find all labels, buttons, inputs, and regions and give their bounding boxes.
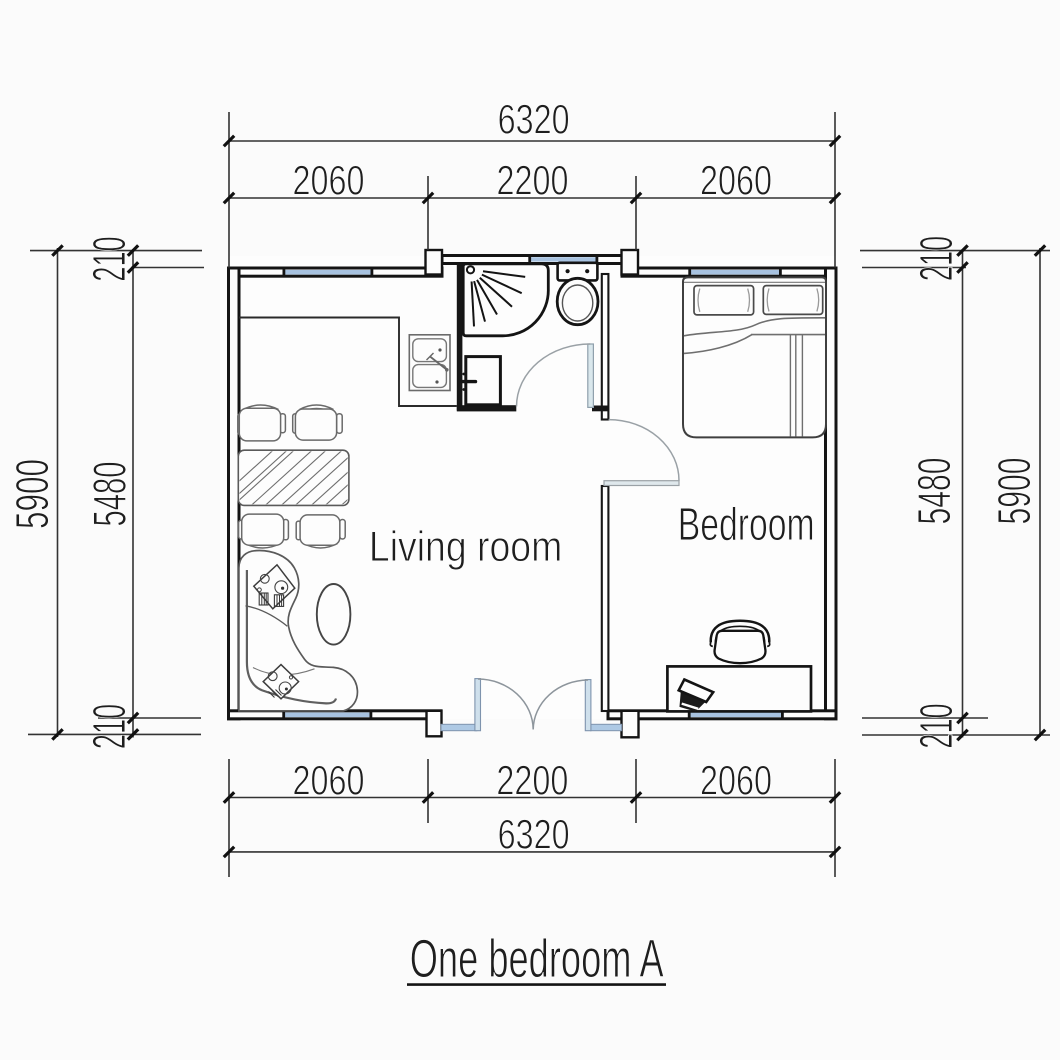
svg-text:One bedroom A: One bedroom A [410,929,664,989]
svg-text:6320: 6320 [498,810,570,857]
svg-text:Living room: Living room [369,523,562,571]
svg-text:2200: 2200 [497,156,569,203]
svg-text:2060: 2060 [700,156,772,203]
svg-text:2060: 2060 [700,756,772,803]
svg-text:5480: 5480 [85,462,136,527]
svg-text:210: 210 [85,236,136,281]
svg-text:210: 210 [85,704,136,749]
svg-text:5900: 5900 [990,457,1041,524]
svg-text:2200: 2200 [496,756,568,803]
svg-text:6320: 6320 [498,95,570,142]
svg-text:210: 210 [912,236,963,281]
svg-text:5480: 5480 [910,457,961,524]
svg-text:2060: 2060 [293,156,365,203]
svg-text:210: 210 [912,703,963,748]
svg-text:Bedroom: Bedroom [678,498,815,550]
svg-text:2060: 2060 [293,756,365,803]
svg-text:5900: 5900 [7,459,58,529]
